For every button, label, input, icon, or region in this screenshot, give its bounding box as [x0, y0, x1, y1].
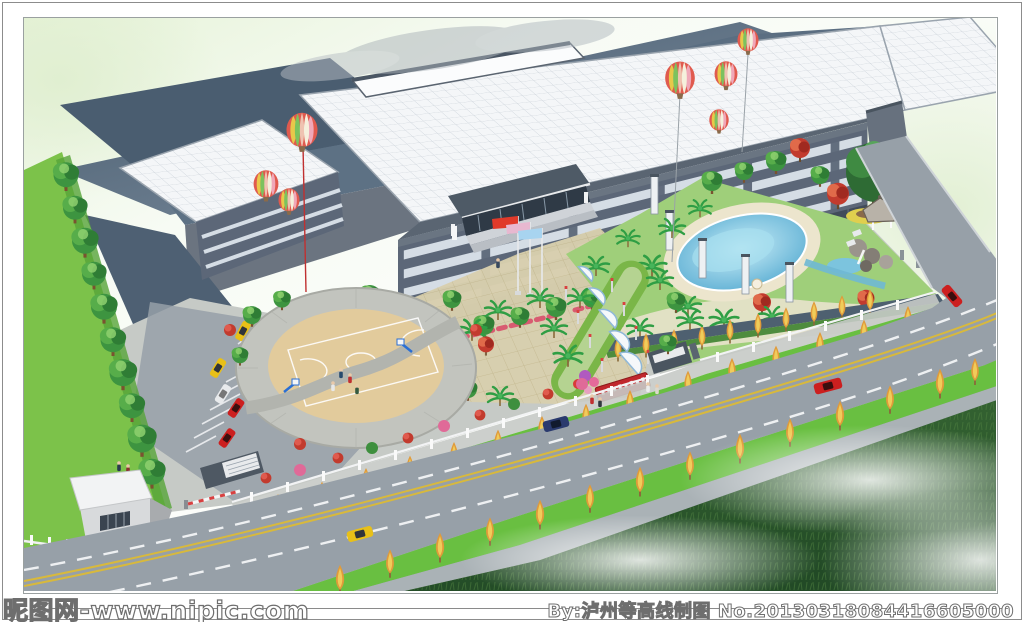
watermark-site: 昵图网-www.nipic.com	[3, 591, 309, 622]
statue	[452, 226, 457, 240]
rendering-scene	[0, 0, 1024, 622]
watermark-credit: By:泸州等高线制图 No.20130318084416605000	[547, 597, 1014, 622]
architectural-rendering-page: 昵图网-www.nipic.com By:泸州等高线制图 No.20130318…	[0, 0, 1024, 622]
pool-umbrella	[752, 279, 762, 289]
